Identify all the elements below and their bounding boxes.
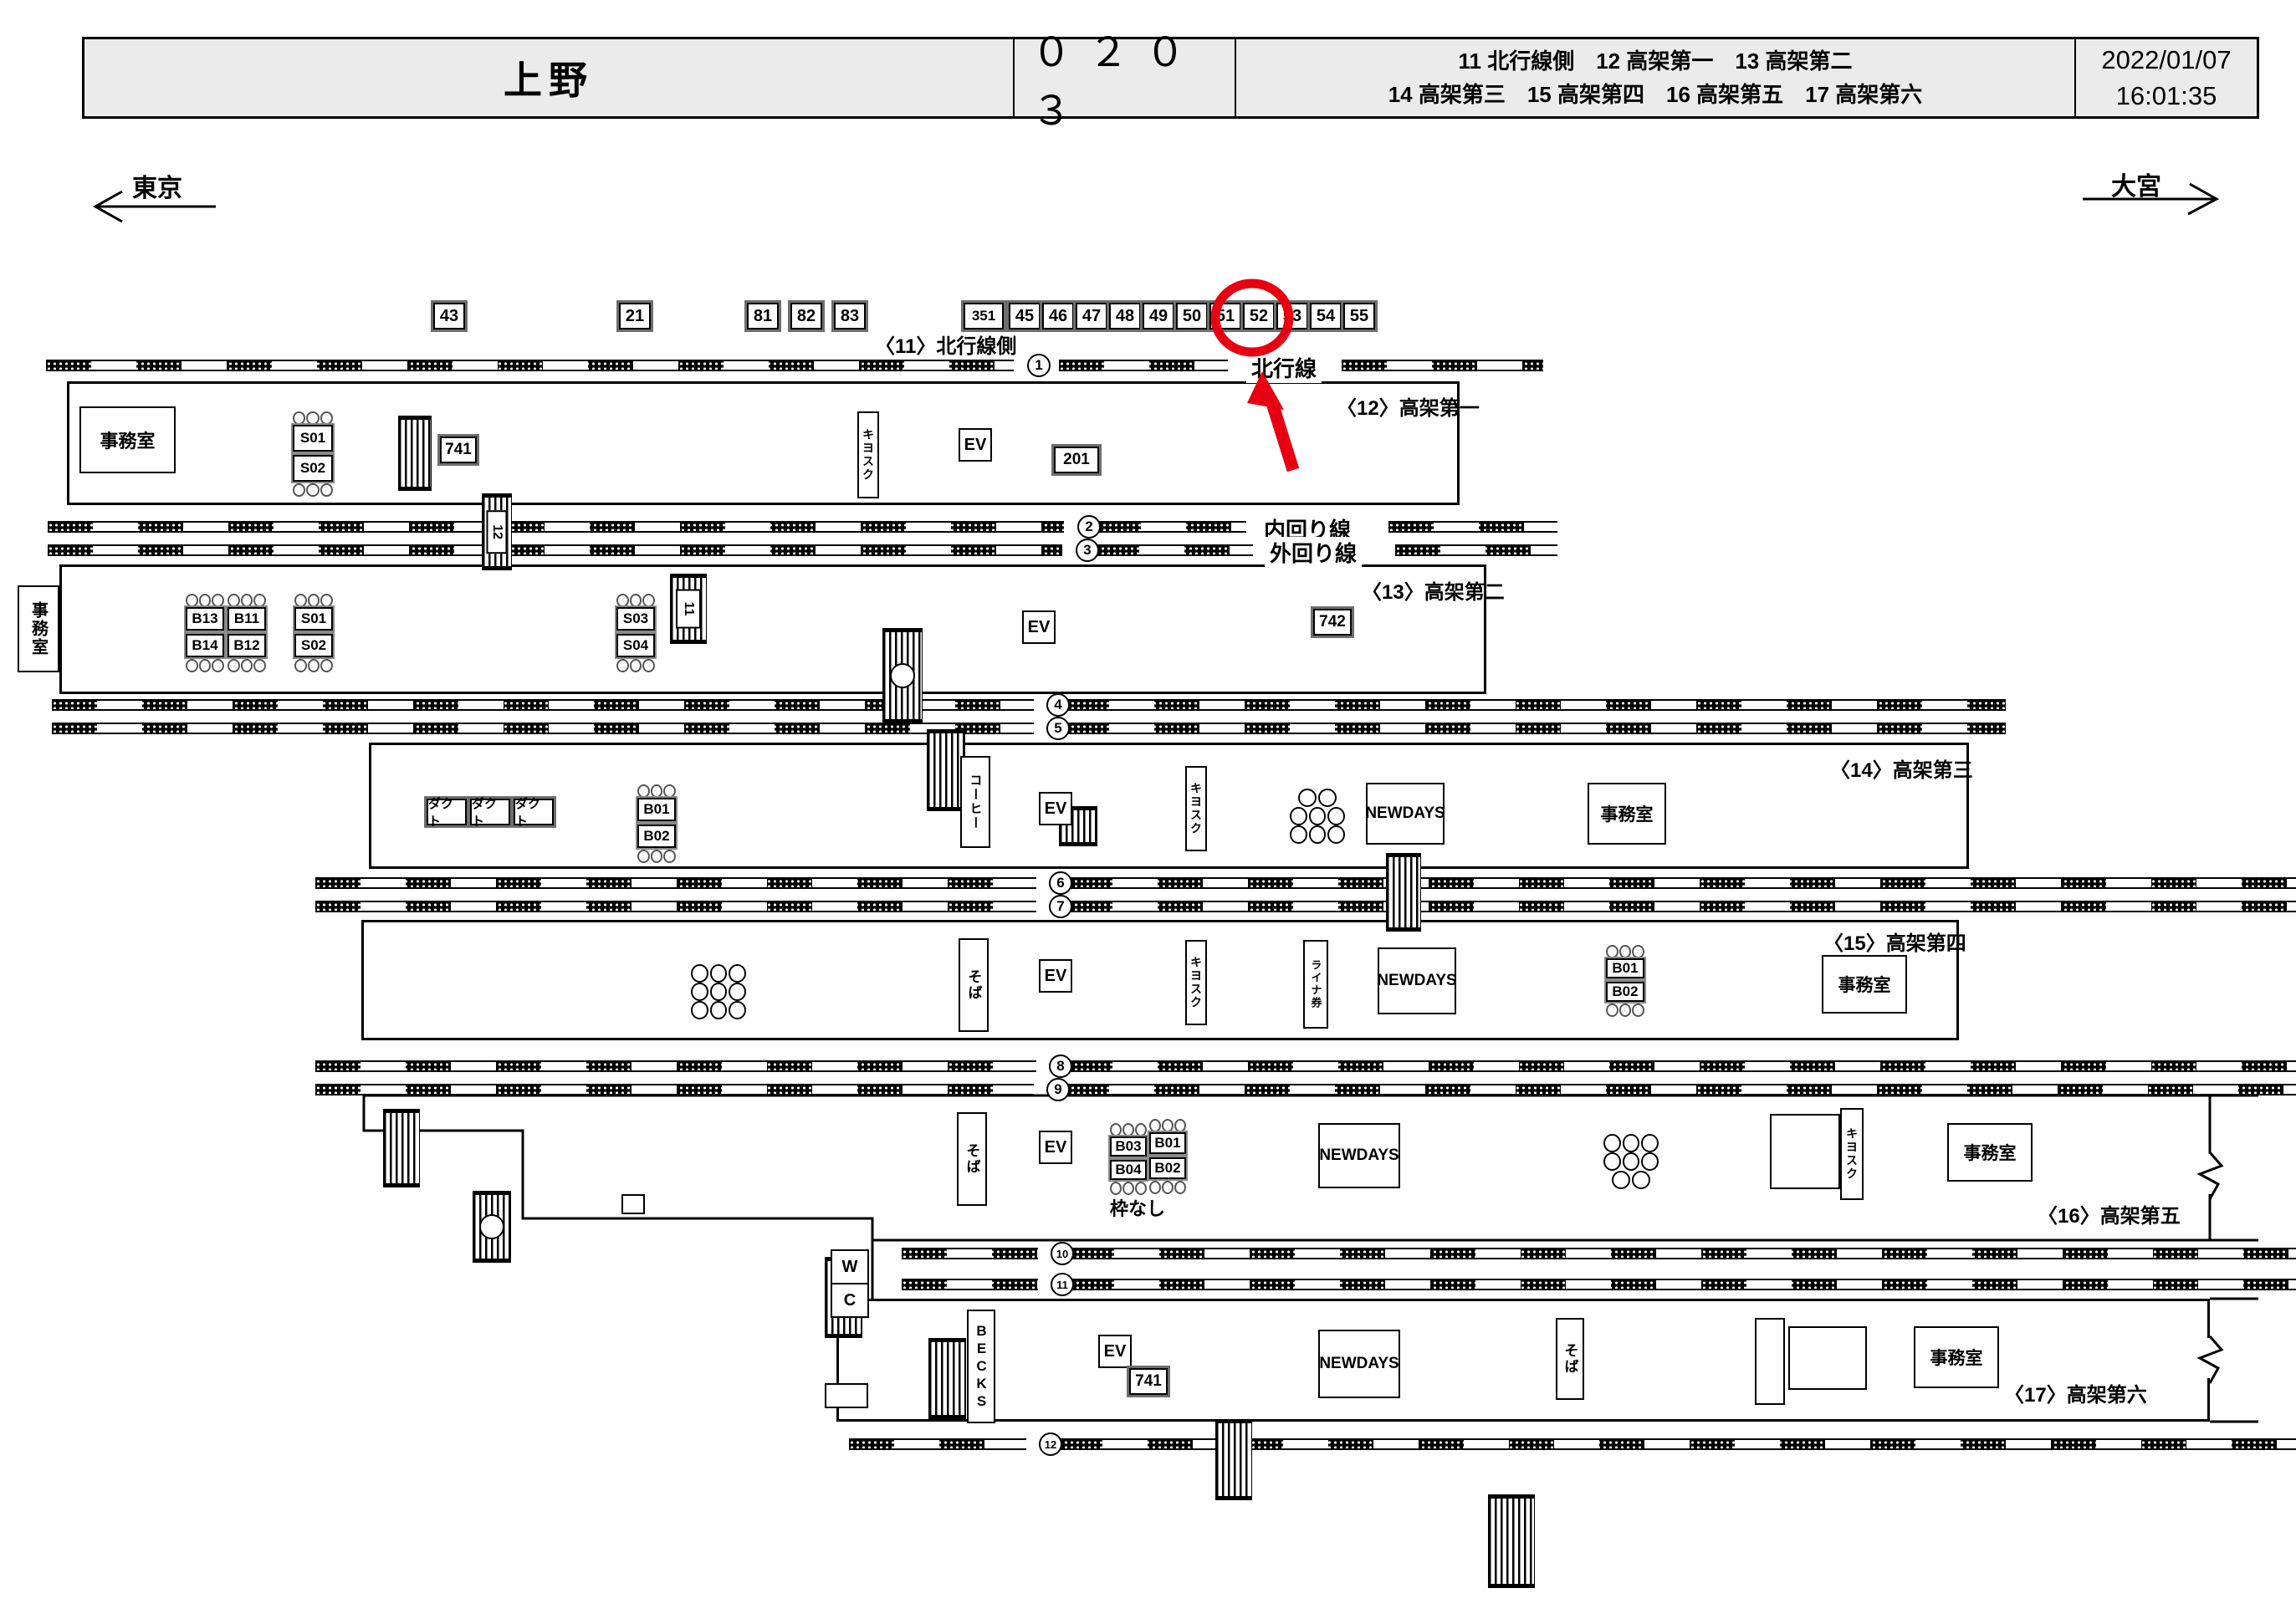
date-display: 2022/01/07 bbox=[2101, 42, 2231, 78]
escalator-label: B13 bbox=[186, 607, 224, 631]
platform-15 bbox=[361, 920, 1959, 1040]
elevator: EV bbox=[1098, 1335, 1132, 1368]
track-number-7: 7 bbox=[1049, 895, 1072, 918]
kiosk: キヨスク bbox=[857, 411, 879, 498]
camera-box-54[interactable]: 54 bbox=[1310, 303, 1342, 329]
escalator-S01-S02: S01S02 bbox=[294, 594, 333, 671]
track-5 bbox=[52, 723, 1034, 734]
note-wakunashi: 枠なし bbox=[1110, 1194, 1165, 1221]
escalator-label: B02 bbox=[637, 825, 676, 848]
escalator-label: S02 bbox=[294, 634, 333, 657]
escalator-label: S01 bbox=[293, 425, 333, 452]
small-box bbox=[621, 1194, 645, 1214]
stairs bbox=[1215, 1419, 1252, 1500]
seats bbox=[691, 964, 746, 1016]
escalator-label: B11 bbox=[228, 607, 266, 631]
escalator-B01-B02: B01B02 bbox=[637, 784, 676, 861]
duct: ダクト bbox=[427, 799, 467, 825]
station-platform-monitor: 上野 ０２０３ 11 北行線側 12 高架第一 13 高架第二 14 高架第三 … bbox=[0, 0, 2296, 1624]
camera-box-43[interactable]: 43 bbox=[433, 303, 465, 329]
legend-line-2: 14 高架第三 15 高架第四 16 高架第五 17 高架第六 bbox=[1388, 78, 1923, 111]
track-number-11: 11 bbox=[1051, 1273, 1074, 1296]
track-1 bbox=[1342, 360, 1543, 371]
area-label-13: 〈13〉高架第二 bbox=[1362, 575, 1505, 605]
track-9 bbox=[315, 1084, 1034, 1095]
track-7 bbox=[1067, 901, 2296, 912]
office-room: 事務室 bbox=[1588, 783, 1666, 845]
seats bbox=[1603, 1134, 1659, 1184]
stairs-12: 12 bbox=[482, 493, 512, 570]
track-3 bbox=[48, 544, 1062, 556]
toilet: WC bbox=[831, 1249, 869, 1318]
diagram-content: 1北行線2内回り線3外回り線45678910111243218182833514… bbox=[0, 0, 2296, 1624]
escalator-label: B14 bbox=[186, 634, 224, 657]
track-5 bbox=[1064, 723, 2006, 734]
platform-12 bbox=[67, 381, 1460, 505]
track-11 bbox=[902, 1279, 1038, 1290]
camera-box-351[interactable]: 351 bbox=[964, 303, 1004, 329]
box-742: 742 bbox=[1313, 609, 1352, 636]
header-bar: 上野 ０２０３ 11 北行線側 12 高架第一 13 高架第二 14 高架第三 … bbox=[82, 37, 2259, 119]
area-label-12: 〈12〉高架第一 bbox=[1337, 391, 1480, 421]
office-room: 事務室 bbox=[18, 585, 59, 672]
track-12 bbox=[849, 1438, 1026, 1450]
elevator: EV bbox=[1039, 792, 1072, 825]
escalator-label: B04 bbox=[1110, 1160, 1147, 1180]
stair-number: 12 bbox=[486, 510, 507, 554]
track-number-8: 8 bbox=[1049, 1055, 1072, 1078]
newdays-store: NEWDAYS bbox=[1366, 783, 1445, 845]
soba-shop: そば bbox=[1556, 1318, 1584, 1400]
stairs-clock bbox=[473, 1191, 511, 1263]
elevator: EV bbox=[1039, 1131, 1072, 1164]
clock-icon bbox=[890, 663, 915, 688]
track-6 bbox=[1067, 877, 2296, 889]
track-4 bbox=[1064, 699, 2006, 711]
camera-box-83[interactable]: 83 bbox=[834, 303, 866, 329]
area-label-11: 〈11〉北行線側 bbox=[875, 329, 1016, 359]
elevator: EV bbox=[1039, 959, 1072, 993]
track-number-4: 4 bbox=[1046, 693, 1070, 717]
escalator-B01-B02: B01B02 bbox=[1149, 1119, 1186, 1192]
kiosk: キヨスク bbox=[1185, 940, 1207, 1025]
escalator-label: B12 bbox=[228, 634, 266, 657]
track-10 bbox=[902, 1248, 1038, 1259]
camera-box-50[interactable]: 50 bbox=[1176, 303, 1208, 329]
escalator-B11-B12: B11B12 bbox=[228, 594, 266, 671]
office-room: 事務室 bbox=[1947, 1123, 2033, 1182]
track-number-6: 6 bbox=[1049, 871, 1072, 895]
monitor-code: ０２０３ bbox=[1015, 19, 1235, 136]
track-number-5: 5 bbox=[1046, 717, 1070, 740]
office-room: 事務室 bbox=[1822, 955, 1907, 1014]
stairs bbox=[928, 1338, 966, 1419]
legend-line-1: 11 北行線側 12 高架第一 13 高架第二 bbox=[1459, 44, 1853, 78]
office-room: 事務室 bbox=[79, 406, 176, 473]
kiosk-structure bbox=[1770, 1114, 1840, 1189]
stair-number: 11 bbox=[676, 590, 701, 629]
track-1 bbox=[1059, 360, 1228, 371]
escalator-label: B01 bbox=[1149, 1132, 1186, 1154]
header-station-cell: 上野 bbox=[84, 39, 1013, 116]
track-number-2: 2 bbox=[1077, 515, 1101, 539]
track-11 bbox=[1069, 1279, 2296, 1290]
track-number-1: 1 bbox=[1027, 354, 1051, 377]
elevator: EV bbox=[959, 428, 992, 462]
camera-box-55[interactable]: 55 bbox=[1343, 303, 1375, 329]
track-6 bbox=[315, 877, 1036, 889]
escalator-label: S04 bbox=[616, 634, 655, 657]
area-label-14: 〈14〉高架第三 bbox=[1830, 753, 1973, 783]
escalator-label: B02 bbox=[1606, 982, 1644, 1002]
box-741: 741 bbox=[1129, 1368, 1168, 1395]
header-datetime-cell: 2022/01/07 16:01:35 bbox=[2074, 39, 2257, 116]
newdays-store: NEWDAYS bbox=[1378, 947, 1456, 1014]
box-201: 201 bbox=[1054, 447, 1099, 473]
camera-box-48[interactable]: 48 bbox=[1109, 303, 1141, 329]
escalator-B13-B14: B13B14 bbox=[186, 594, 224, 671]
escalator-S03-S04: S03S04 bbox=[616, 594, 655, 671]
track-3 bbox=[1094, 544, 1253, 556]
escalator-label: S03 bbox=[616, 607, 655, 631]
track-name-label: 北行線 bbox=[1246, 352, 1322, 383]
area-label-15: 〈15〉高架第四 bbox=[1823, 927, 1966, 956]
escalator-label: S01 bbox=[294, 607, 333, 631]
platform-14 bbox=[369, 743, 1969, 869]
direction-label-omiya: 大宮 bbox=[2111, 166, 2161, 202]
track-number-9: 9 bbox=[1046, 1078, 1070, 1101]
track-2 bbox=[48, 521, 1064, 533]
camera-box-49[interactable]: 49 bbox=[1143, 303, 1174, 329]
newdays-store: NEWDAYS bbox=[1318, 1330, 1400, 1398]
coffee-shop: コーヒー bbox=[960, 756, 990, 848]
soba-shop: そば bbox=[957, 1112, 987, 1206]
area-label-16: 〈16〉高架第五 bbox=[2038, 1199, 2181, 1228]
track-7 bbox=[315, 901, 1036, 912]
escalator-S01-S02: S01S02 bbox=[293, 411, 333, 495]
office-room: 事務室 bbox=[1914, 1326, 1999, 1388]
newdays-store: NEWDAYS bbox=[1318, 1123, 1400, 1188]
track-2 bbox=[1388, 521, 1557, 533]
becks-cafe: BECKS bbox=[967, 1310, 995, 1423]
stairs-11: 11 bbox=[670, 574, 707, 644]
stairs-clock bbox=[882, 628, 923, 723]
box-741: 741 bbox=[440, 437, 477, 463]
direction-label-tokyo: 東京 bbox=[132, 167, 182, 204]
soba-shop: そば bbox=[959, 938, 989, 1032]
camera-box-47[interactable]: 47 bbox=[1076, 303, 1107, 329]
track-3 bbox=[1395, 544, 1557, 556]
camera-box-45[interactable]: 45 bbox=[1009, 303, 1041, 329]
seats bbox=[1290, 789, 1345, 840]
camera-box-53[interactable]: 53 bbox=[1276, 303, 1308, 329]
escalator-label: B03 bbox=[1110, 1136, 1147, 1157]
escalator-label: B02 bbox=[1149, 1157, 1186, 1179]
stairs bbox=[383, 1109, 420, 1187]
stairs bbox=[398, 416, 432, 491]
header-code-cell: ０２０３ bbox=[1013, 39, 1235, 116]
track-8 bbox=[315, 1060, 1036, 1072]
track-1 bbox=[46, 360, 1014, 371]
clock-icon bbox=[479, 1214, 504, 1239]
track-8 bbox=[1067, 1060, 2296, 1072]
liner-ticket: ライナ券 bbox=[1303, 940, 1328, 1029]
camera-box-52[interactable]: 52 bbox=[1243, 303, 1275, 329]
track-number-12: 12 bbox=[1039, 1432, 1062, 1456]
camera-box-46[interactable]: 46 bbox=[1042, 303, 1074, 329]
stairs bbox=[1488, 1494, 1535, 1588]
area-label-17: 〈17〉高架第六 bbox=[2004, 1378, 2147, 1407]
small-box bbox=[825, 1383, 868, 1408]
time-display: 16:01:35 bbox=[2116, 78, 2217, 114]
camera-box-51[interactable]: 51 bbox=[1209, 303, 1241, 329]
track-number-10: 10 bbox=[1051, 1242, 1074, 1265]
camera-box-21[interactable]: 21 bbox=[619, 303, 651, 329]
elevator: EV bbox=[1022, 610, 1056, 644]
track-10 bbox=[1069, 1248, 2296, 1259]
header-legend-cell: 11 北行線側 12 高架第一 13 高架第二 14 高架第三 15 高架第四 … bbox=[1235, 39, 2074, 116]
kiosk: キヨスク bbox=[1185, 766, 1207, 851]
camera-box-81[interactable]: 81 bbox=[747, 303, 779, 329]
station-title: 上野 bbox=[504, 50, 594, 105]
escalator-label: S02 bbox=[293, 455, 333, 482]
escalator-label: B01 bbox=[637, 798, 676, 821]
duct: ダクト bbox=[514, 799, 554, 825]
track-number-3: 3 bbox=[1076, 539, 1099, 562]
stairs bbox=[1386, 853, 1421, 932]
toilet-label: C bbox=[832, 1284, 867, 1316]
platform-13 bbox=[59, 564, 1486, 694]
track-name-label: 外回り線 bbox=[1265, 537, 1362, 568]
track-2 bbox=[1096, 521, 1246, 533]
camera-box-82[interactable]: 82 bbox=[790, 303, 822, 329]
duct: ダクト bbox=[470, 799, 510, 825]
track-9 bbox=[1064, 1084, 2296, 1095]
escalator-B01-B02: B01B02 bbox=[1606, 945, 1644, 1015]
kiosk: キヨスク bbox=[1840, 1108, 1864, 1200]
escalator-label: B01 bbox=[1606, 958, 1644, 978]
kiosk-structure bbox=[1788, 1326, 1867, 1390]
toilet-label: W bbox=[832, 1251, 867, 1284]
booth bbox=[1755, 1318, 1785, 1405]
escalator-B03-B04: B03B04 bbox=[1110, 1123, 1147, 1192]
